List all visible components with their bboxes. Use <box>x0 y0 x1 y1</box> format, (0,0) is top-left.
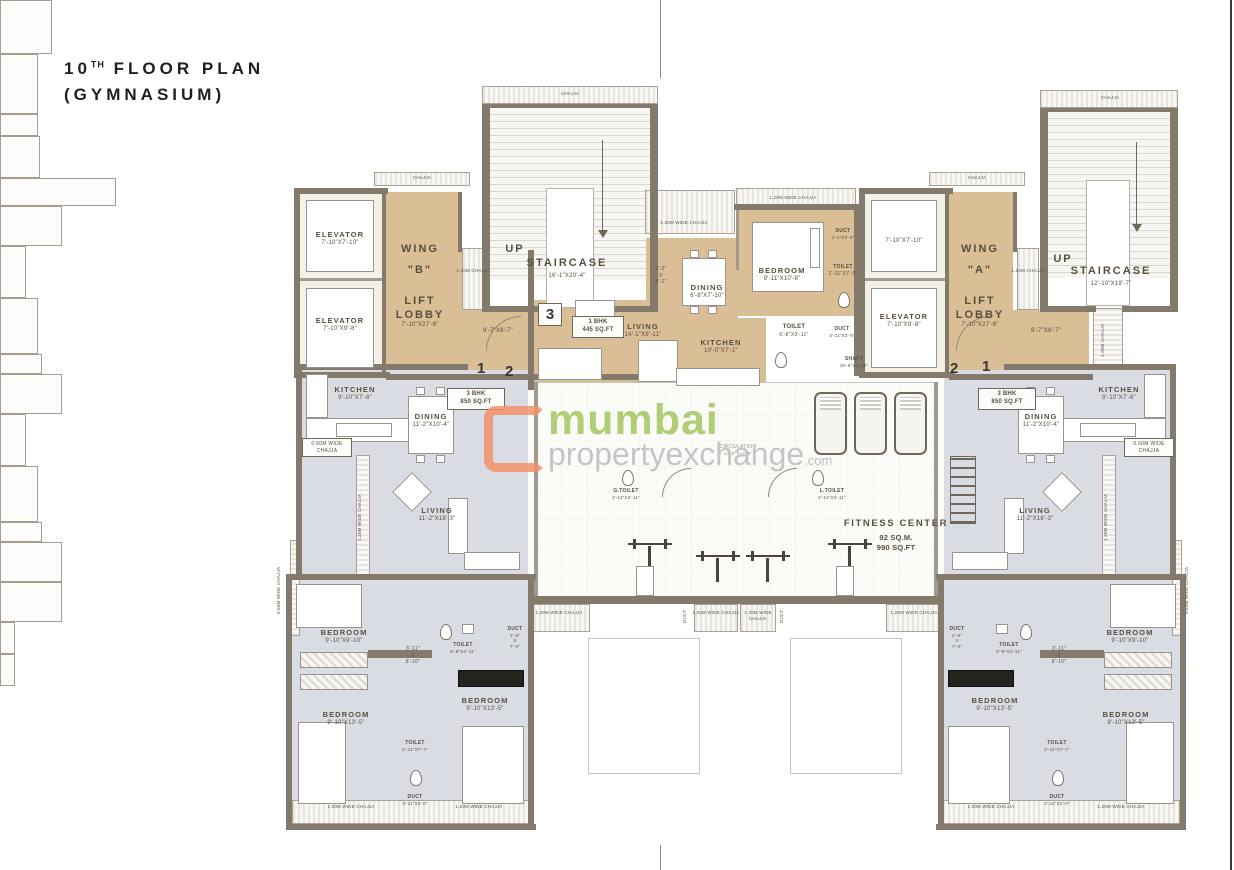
winga-elevator2-label: ELEVATOR7'-10"X9'-8" <box>865 312 943 330</box>
chair-icon <box>1046 455 1055 463</box>
chair-icon <box>690 306 699 314</box>
stair-arrow-head-icon <box>598 230 608 238</box>
unit3l-kitchen-label: KITCHEN9'-10"X7'-6" <box>322 385 388 403</box>
wardrobe-icon <box>1104 674 1172 690</box>
wall <box>534 596 940 604</box>
wingb-lobby-label: WING "B" LIFT LOBBY 7'-10"X27'-6" <box>388 238 452 330</box>
unit3r-living-label: LIVING11'-2"X18'-3" <box>1002 506 1068 524</box>
title-line1: 10TH FLOOR PLAN <box>64 59 264 78</box>
unit3r-duct2-label: DUCT3'-11"X2'-0" <box>1034 794 1080 806</box>
open-bay <box>790 638 902 774</box>
wall <box>298 278 384 281</box>
chajja-120-wide-label: 1.20M WIDE CHAJJA <box>884 610 944 616</box>
chair-icon <box>1026 455 1035 463</box>
bed-icon <box>948 726 1010 804</box>
chajja-120m-label: 1.20M CHAJJA <box>1007 268 1049 274</box>
chair-icon <box>708 250 717 258</box>
treadmill-icon <box>894 392 927 455</box>
sink-icon <box>462 624 474 634</box>
staircase-landing <box>546 188 594 308</box>
chair-icon <box>416 387 425 395</box>
chajja-120-wide-label: 1.20M WIDE CHAJJA <box>958 804 1024 810</box>
sink-icon <box>996 624 1008 634</box>
unit3l-passage-dims: 3'-11"X8'-10" <box>398 646 428 666</box>
stair-arrow-line <box>1136 142 1137 226</box>
treadmill-icon <box>854 392 887 455</box>
duct-label-vertical: DUCT <box>779 602 788 630</box>
unit3r-duct1-room <box>0 414 26 466</box>
unit3l-living-label: LIVING11'-2"X18'-3" <box>404 506 470 524</box>
stair-arrow-line <box>602 140 603 232</box>
unit3l-duct2-room <box>0 354 42 374</box>
wingb-corridor-dims: 9'-7"X6'-7" <box>460 328 536 336</box>
chajja-120-wide-label: 1.20M WIDE CHAJJA <box>526 610 592 616</box>
sofa-icon <box>538 348 602 380</box>
duct-room <box>0 654 15 686</box>
wall <box>1122 306 1178 312</box>
unit3r-bedroom3-label: BEDROOM9'-10"X13'-5" <box>958 696 1032 714</box>
wall <box>1170 112 1178 310</box>
unit3r-toilet1-label: TOILET6'-9"X4'-11" <box>978 642 1040 654</box>
wall <box>534 382 538 598</box>
unit1-duct2-room <box>0 136 40 178</box>
page-title: 10TH FLOOR PLAN (GYMNASIUM) <box>64 56 264 109</box>
chajja-060-wide-vertical: 0.60M WIDE CHAJJA <box>1184 542 1196 638</box>
unit3r-toilet2-room <box>0 466 38 522</box>
winga-staircase-label: STAIRCASE12'-10"X19'-7" <box>1056 260 1166 289</box>
wall <box>296 368 302 576</box>
chajja-120-wide-vertical: 1.20M WIDE CHAJJA <box>357 465 369 569</box>
wall <box>1040 306 1096 312</box>
wall <box>949 374 1093 380</box>
wardrobe-icon <box>300 652 368 668</box>
chajja-strip-120m <box>462 248 484 310</box>
chair-icon <box>1046 387 1055 395</box>
chajja-label: CHAJJA <box>935 175 1019 181</box>
wall <box>859 372 955 378</box>
title-line2: (GYMNASIUM) <box>64 85 225 104</box>
bed-icon <box>298 722 346 804</box>
unit1-duct1-room <box>0 114 38 136</box>
unit1-dining-label: DINING6'-8"X7'-10" <box>678 283 736 301</box>
shaft-room <box>0 178 116 206</box>
chajja-label: CHAJJA <box>1060 95 1160 101</box>
unit1-toilet2-room <box>0 54 38 114</box>
wall <box>863 278 947 281</box>
unit3l-toilet2-room <box>0 298 38 354</box>
bed-icon <box>462 726 524 804</box>
chair-icon <box>436 455 445 463</box>
wardrobe-icon <box>300 674 368 690</box>
wall <box>1013 192 1017 252</box>
page-edge-line <box>1230 0 1232 870</box>
unit3l-toilet2-label: TOILET2'-11"X7'-7" <box>392 740 438 752</box>
wall <box>1170 368 1176 576</box>
toilet-icon <box>838 292 850 308</box>
winga-lobby-label: WING "A" LIFT LOBBY 7'-10"X27'-6" <box>948 238 1012 330</box>
chajja-120-wide-label: 1.20M WIDE CHAJJA <box>692 610 740 616</box>
wall <box>736 210 739 270</box>
chajja-strip <box>886 604 942 632</box>
pillow-icon <box>810 228 820 268</box>
wall <box>482 104 658 108</box>
chajja-120-wide-label: 1.20M WIDE CHAJJA <box>318 804 384 810</box>
wall <box>936 824 1186 830</box>
chajja-060-wide-vertical: 0.60M WIDE CHAJJA <box>276 542 288 638</box>
wall <box>734 204 860 210</box>
wingb-elevator1-label: ELEVATOR7'-10"X7'-10" <box>302 230 378 248</box>
wall <box>294 188 300 378</box>
chair-icon <box>708 306 717 314</box>
ladies-toilet-label: L.TOILET4'-11"X2'-11" <box>800 488 864 500</box>
barbell-icon <box>746 550 790 584</box>
wardrobe-dark-icon <box>948 670 1014 687</box>
chajja-label: CHAJJA <box>380 175 464 181</box>
unit3r-dining-label: DINING11'-2"X10'-4" <box>1008 412 1074 430</box>
wall <box>859 188 865 378</box>
wall <box>1004 364 1176 370</box>
chajja-120-wide-label: 1.20M WIDE CHAJJA <box>446 804 512 810</box>
chajja-120-wide-vertical: 1.20M WIDE CHAJJA <box>1103 465 1115 569</box>
bed-icon <box>1126 722 1174 804</box>
chair-icon <box>436 387 445 395</box>
unit1-passage-dims: 3'-2"X8'-1" <box>646 266 676 286</box>
sink-icon <box>1080 423 1136 437</box>
bed-icon <box>296 584 362 628</box>
wingb-staircase-label: STAIRCASE16'-1"X20'-4" <box>512 252 622 281</box>
unit3l-bedroom3-label: BEDROOM9'-10"X13'-5" <box>448 696 522 714</box>
wall <box>1040 108 1178 112</box>
wardrobe-dark-icon <box>458 670 524 687</box>
wall <box>286 574 536 580</box>
unit-number-2: 2 <box>950 360 958 377</box>
floor-plan-canvas: 10TH FLOOR PLAN (GYMNASIUM) CHAJJA ELEVA… <box>0 0 1234 870</box>
shaft-label: SHAFT15'-6"X2'-10" <box>800 356 908 368</box>
fold-mark-bottom <box>660 845 661 870</box>
toilet-icon <box>775 352 787 368</box>
unit3l-duct1-room <box>0 246 26 298</box>
unit1-toilet2-label: TOILET2'-11"X7'-5" <box>820 264 866 277</box>
gym-bench-icon <box>836 566 854 596</box>
winga-elevator1-label: 7'-10"X7'-10" <box>867 238 941 246</box>
unit1-toilet1-room <box>0 0 52 54</box>
unit3r-bedroom2-label: BEDROOM9'-10"X13'-5" <box>1090 710 1162 728</box>
unit3l-dining-label: DINING11'-2"X10'-4" <box>398 412 464 430</box>
wall <box>482 306 544 312</box>
chajja-060-box: 0.60M WIDE CHAJJA <box>302 438 352 457</box>
toilet-icon <box>1020 624 1032 640</box>
barbell-icon <box>696 550 740 584</box>
open-bay <box>588 638 700 774</box>
unit1-duct2-label: DUCT3'-11"X3'-9" <box>820 326 864 338</box>
chajja-120-wide-label: 1.20M WIDE CHAJJA <box>748 195 838 201</box>
toilet-icon <box>622 470 634 486</box>
unit3r-duct2-room <box>0 522 42 542</box>
wall <box>286 824 536 830</box>
elevator-car <box>871 200 937 272</box>
winga-corridor-dims: 9'-7"X6'-7" <box>1008 328 1084 336</box>
unit3r-type-label: 3 BHK850 SQ.FT <box>978 388 1036 410</box>
unit1-kitchen-label: KITCHEN10'-0"X7'-1" <box>688 338 754 356</box>
wardrobe-icon <box>1104 652 1172 668</box>
unit3l-duct1-label: DUCT 2'-8"X7'-3" <box>500 626 530 650</box>
bed-icon <box>1110 584 1176 628</box>
ladies-toilet-room <box>0 582 62 622</box>
wall <box>482 108 490 310</box>
wall <box>458 192 462 252</box>
unit3r-bedroom1-label: BEDROOM9'-10"X9'-10" <box>1094 628 1166 646</box>
unit1-toilet1-label: TOILET6'-8"X3'-11" <box>766 324 822 338</box>
wall <box>859 188 953 194</box>
unit3l-bedroom2-label: BEDROOM9'-10"X13'-5" <box>310 710 382 728</box>
stair-arrow-head-icon <box>1132 224 1142 232</box>
gym-bench-icon <box>636 566 654 596</box>
duct-label-vertical: DUCT <box>682 602 691 630</box>
chajja-label: CHAJJA <box>520 91 620 97</box>
sofa-icon <box>464 552 520 570</box>
sink-icon <box>336 423 392 437</box>
chajja-060-box: 0.60M WIDE CHAJJA <box>1124 438 1174 457</box>
toilet-icon <box>1052 770 1064 786</box>
unit3l-duct2-label: DUCT3'-11"X2'-0" <box>392 794 438 806</box>
unit3l-toilet1-room <box>0 206 62 246</box>
treadmill-icon <box>814 392 847 455</box>
duct-room <box>0 622 15 654</box>
chajja-120-wide-label: 1.20M WIDE CHAJJA <box>652 220 716 226</box>
unit-number-1: 1 <box>982 358 990 375</box>
unit1-bedroom-label: BEDROOM9'-11"X10'-8" <box>742 266 822 284</box>
wall <box>936 574 1186 580</box>
unit3r-passage-dims: 3'-11"X8'-10" <box>1044 646 1074 666</box>
kitchen-counter-icon <box>676 368 760 386</box>
unit3r-toilet1-room <box>0 374 62 414</box>
chajja-strip <box>528 604 590 632</box>
unit1-duct1-label: DUCT2'-1"X2'-9" <box>822 228 864 240</box>
chajja-strip <box>645 190 735 234</box>
wall <box>382 192 386 376</box>
chajja-strip <box>694 604 738 632</box>
unit3l-type-label: 3 BHK850 SQ.FT <box>447 388 505 410</box>
unit3r-toilet2-label: TOILET2'-11"X7'-7" <box>1034 740 1080 752</box>
unit-number-2: 2 <box>505 363 513 380</box>
sofa-icon <box>952 552 1008 570</box>
chair-icon <box>416 455 425 463</box>
tv-unit-icon <box>638 340 678 382</box>
unit3l-toilet1-label: TOILET6'-9"X4'-11" <box>432 642 494 654</box>
toilet-icon <box>440 624 452 640</box>
toilet-icon <box>812 470 824 486</box>
chajja-120-wide-label: 1.20M WIDE CHAJJA <box>738 610 778 622</box>
chajja-120-wide-label: 1.20M WIDE CHAJJA <box>1088 804 1154 810</box>
gents-toilet-label: G.TOILET4'-11"X2'-11" <box>594 488 658 500</box>
unit3l-bedroom1-label: BEDROOM9'-10"X9'-10" <box>308 628 380 646</box>
wall <box>294 188 388 194</box>
unit-number-1: 1 <box>477 360 485 377</box>
chajja-120m-label-vertical: 1.20M CHAJJA <box>1100 310 1116 370</box>
chair-icon <box>690 250 699 258</box>
unit1-number: 3 <box>538 303 562 326</box>
wingb-elevator2-label: ELEVATOR7'-10"X9'-8" <box>302 316 378 334</box>
fitness-center-label: FITNESS CENTER 92 SQ.M. 990 SQ.FT <box>838 512 954 552</box>
gents-toilet-room <box>0 542 62 582</box>
unit3r-duct1-label: DUCT 2'-8"X7'-3" <box>942 626 972 650</box>
fold-mark-top <box>660 0 661 78</box>
wall <box>934 382 938 598</box>
chajja-strip-120m <box>1017 248 1039 310</box>
unit1-living-label: LIVING14'-1"X9'-11" <box>608 322 678 340</box>
chajja-120m-label: 1.20M CHAJJA <box>452 268 494 274</box>
circulation-label: CIRCULATION14'-9"X12'-8" <box>700 444 776 456</box>
unit3r-kitchen-label: KITCHEN9'-10"X7'-6" <box>1086 385 1152 403</box>
toilet-icon <box>410 770 422 786</box>
wall <box>1040 112 1048 310</box>
